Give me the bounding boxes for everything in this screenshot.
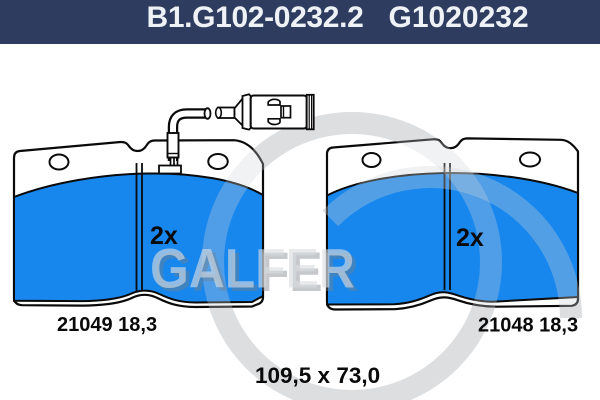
svg-text:B1.G102-0232.2: B1.G102-0232.2	[147, 1, 364, 34]
svg-text:109,5 x 73,0: 109,5 x 73,0	[255, 363, 380, 388]
svg-text:G1020232: G1020232	[389, 1, 529, 34]
svg-text:GALFER: GALFER	[150, 238, 355, 300]
svg-text:2x: 2x	[150, 222, 178, 250]
svg-text:2x: 2x	[456, 224, 484, 252]
svg-text:21049 18,3: 21049 18,3	[57, 314, 157, 336]
svg-text:21048 18,3: 21048 18,3	[478, 315, 578, 337]
